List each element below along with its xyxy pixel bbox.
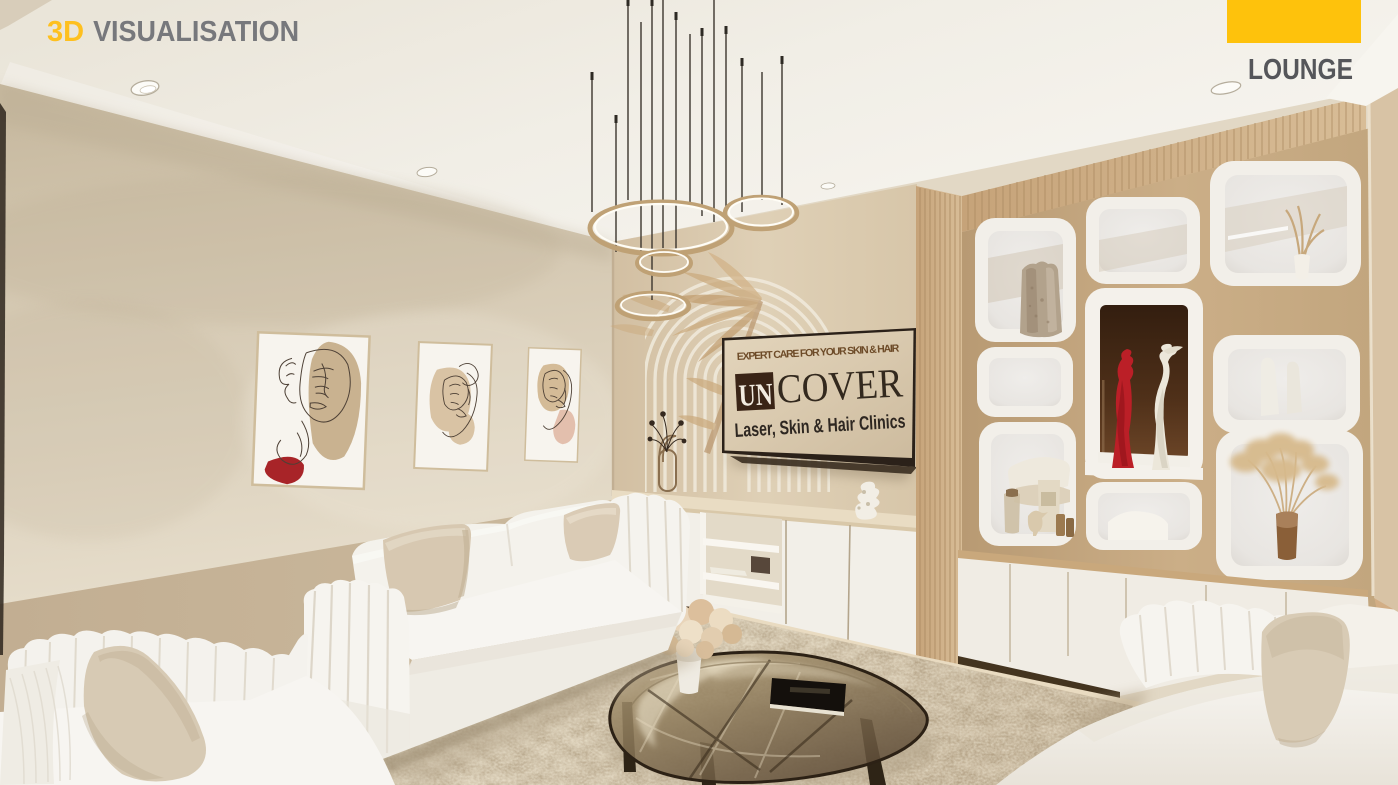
svg-text:LOUNGE: LOUNGE [1248, 54, 1353, 86]
svg-text:UN: UN [738, 376, 774, 413]
svg-text:COVER: COVER [776, 359, 905, 412]
